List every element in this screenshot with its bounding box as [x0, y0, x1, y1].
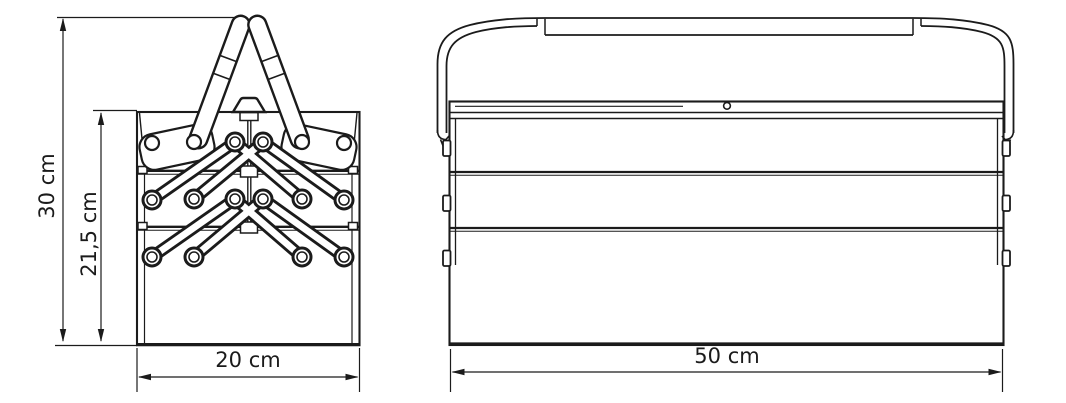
handle-hooks — [438, 130, 1014, 147]
dim-label-width: 50 cm — [694, 344, 759, 368]
toolbox-technical-drawing: 30 cm 21,5 cm 20 cm 50 cm — [0, 0, 1066, 403]
dimension-20cm — [138, 374, 359, 380]
folded-handle — [187, 13, 311, 151]
dim-label-depth: 20 cm — [215, 348, 280, 372]
arrowhead-left — [138, 374, 151, 380]
arrowhead-down — [98, 329, 104, 342]
hinge-tabs — [443, 141, 1010, 267]
latch — [233, 98, 265, 112]
handle-inner-right — [921, 26, 1005, 133]
arrowhead-up — [60, 18, 66, 31]
dim-label-total-height: 30 cm — [35, 153, 59, 218]
lid-rivet — [724, 102, 731, 109]
front-view-body — [443, 102, 1010, 346]
arrowhead-left — [452, 369, 465, 375]
drawing-canvas: 30 cm 21,5 cm 20 cm 50 cm — [0, 0, 1066, 403]
arrowhead-up — [98, 112, 104, 125]
arrowhead-right — [989, 369, 1002, 375]
handle-inner-left — [447, 26, 538, 133]
dimension-30cm — [60, 18, 66, 342]
handle-strap-left — [187, 13, 252, 151]
arrowhead-right — [346, 374, 359, 380]
dim-label-body-height: 21,5 cm — [77, 191, 101, 276]
arrowhead-down — [60, 329, 66, 342]
front-view — [438, 18, 1014, 392]
handle-grip-ticks — [537, 19, 921, 35]
handle-strap-right — [246, 13, 311, 151]
carry-handle — [438, 18, 1014, 147]
